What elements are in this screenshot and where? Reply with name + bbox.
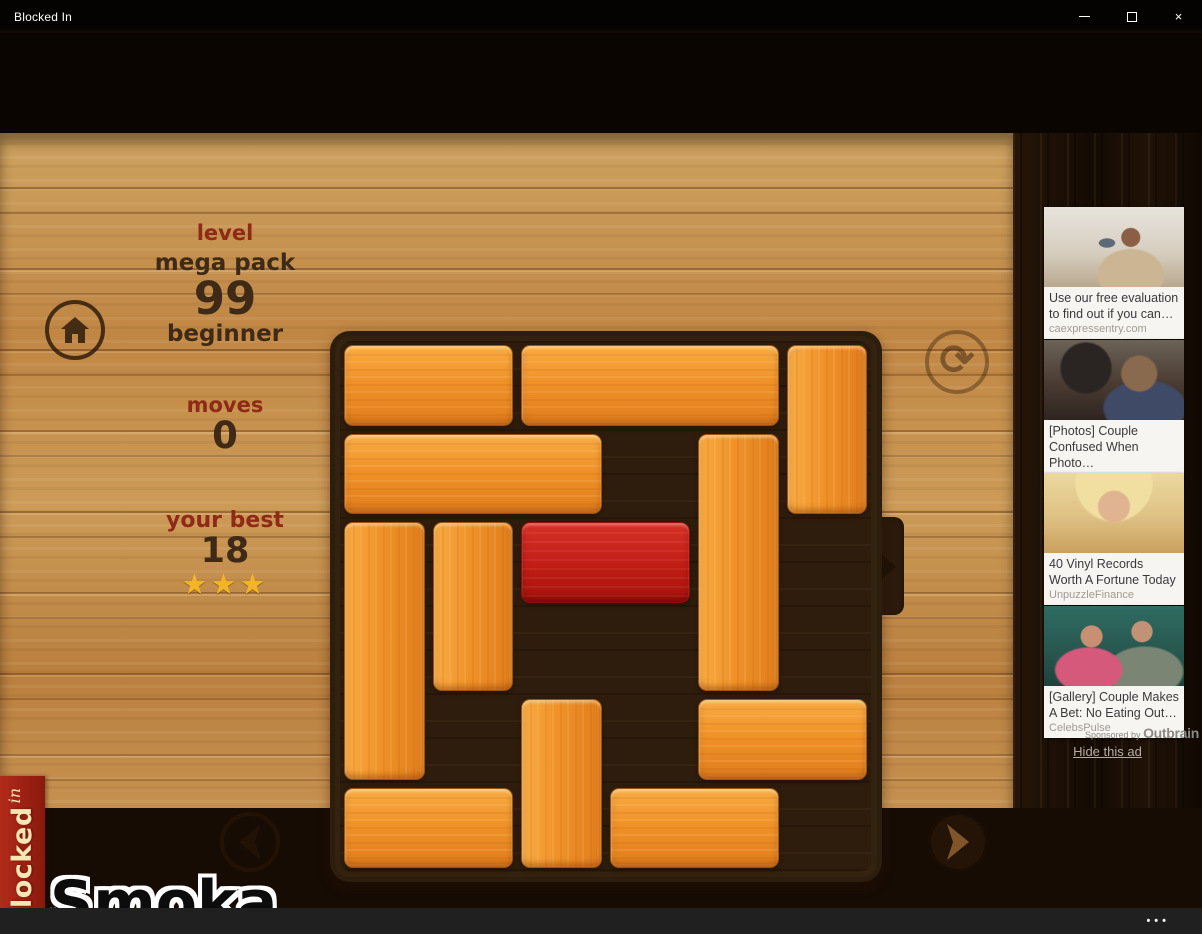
ad-card[interactable]: [Gallery] Couple Makes A Bet: No Eating … bbox=[1044, 606, 1184, 738]
ad-title: [Gallery] Couple Makes A Bet: No Eating … bbox=[1049, 689, 1179, 721]
app-bar: ••• bbox=[0, 908, 1202, 934]
maximize-icon bbox=[1127, 12, 1137, 22]
wood-block[interactable] bbox=[344, 345, 513, 426]
wood-block[interactable] bbox=[787, 345, 868, 514]
close-button[interactable]: × bbox=[1155, 0, 1202, 33]
more-options-button[interactable]: ••• bbox=[1146, 915, 1202, 927]
ad-source: UnpuzzleFinance bbox=[1049, 589, 1179, 601]
chevron-left-icon bbox=[233, 822, 267, 862]
wood-block[interactable] bbox=[344, 522, 425, 780]
chevron-right-icon bbox=[941, 822, 975, 862]
wood-block[interactable] bbox=[521, 345, 779, 426]
wood-block[interactable] bbox=[433, 522, 514, 691]
ad-card[interactable]: 40 Vinyl Records Worth A Fortune Today U… bbox=[1044, 473, 1184, 605]
sponsored-attribution[interactable]: Sponsored by Outbrain bbox=[1049, 725, 1199, 741]
minimize-button[interactable] bbox=[1061, 0, 1108, 33]
game-area: level mega pack 99 beginner moves 0 your… bbox=[0, 133, 1013, 808]
ad-source: caexpressentry.com bbox=[1049, 323, 1179, 335]
wood-block[interactable] bbox=[344, 788, 513, 869]
wood-block[interactable] bbox=[521, 699, 602, 868]
wood-block[interactable] bbox=[698, 699, 867, 780]
banner-subtitle: in bbox=[5, 788, 24, 803]
ad-image bbox=[1044, 207, 1184, 287]
level-number: 99 bbox=[110, 276, 340, 321]
next-level-button[interactable] bbox=[928, 812, 988, 872]
home-button[interactable] bbox=[45, 300, 105, 360]
wood-block[interactable] bbox=[698, 434, 779, 692]
board-field bbox=[340, 341, 871, 872]
ad-card[interactable]: Use our free evaluation to find out if y… bbox=[1044, 207, 1184, 339]
best-value: 18 bbox=[110, 533, 340, 570]
home-icon bbox=[59, 315, 91, 345]
title-bar: Blocked In × bbox=[0, 0, 1202, 33]
refresh-icon: ⟳ bbox=[939, 339, 974, 381]
wood-block[interactable] bbox=[344, 434, 602, 515]
ad-title: Use our free evaluation to find out if y… bbox=[1049, 290, 1179, 322]
puzzle-board bbox=[330, 331, 882, 882]
ad-card[interactable]: [Photos] Couple Confused When Photo… Cel… bbox=[1044, 340, 1184, 488]
window-controls: × bbox=[1061, 0, 1202, 33]
ad-title: [Photos] Couple Confused When Photo… bbox=[1049, 423, 1179, 471]
ad-title: 40 Vinyl Records Worth A Fortune Today bbox=[1049, 556, 1179, 588]
moves-value: 0 bbox=[110, 417, 340, 456]
best-label: your best bbox=[110, 508, 340, 533]
ad-image bbox=[1044, 606, 1184, 686]
red-block[interactable] bbox=[521, 522, 690, 603]
minimize-icon bbox=[1079, 16, 1090, 17]
app-window: Blocked In × level mega pack 99 beginner… bbox=[0, 0, 1202, 934]
top-letterbox bbox=[0, 33, 1202, 133]
close-icon: × bbox=[1175, 9, 1183, 24]
star-rating: ★★★ bbox=[110, 570, 340, 599]
ad-image bbox=[1044, 473, 1184, 553]
sponsored-label: Sponsored by bbox=[1085, 730, 1141, 740]
ad-image bbox=[1044, 340, 1184, 420]
hide-ad-link[interactable]: Hide this ad bbox=[1013, 744, 1202, 759]
maximize-button[interactable] bbox=[1108, 0, 1155, 33]
outbrain-logo: Outbrain bbox=[1143, 725, 1199, 741]
level-info-panel: level mega pack 99 beginner moves 0 your… bbox=[110, 221, 340, 599]
previous-level-button[interactable] bbox=[220, 812, 280, 872]
difficulty-label: beginner bbox=[110, 321, 340, 347]
window-title: Blocked In bbox=[0, 10, 72, 24]
wood-block[interactable] bbox=[610, 788, 779, 869]
ad-panel: Use our free evaluation to find out if y… bbox=[1013, 133, 1202, 808]
restart-button[interactable]: ⟳ bbox=[925, 330, 989, 394]
level-label: level bbox=[110, 221, 340, 245]
